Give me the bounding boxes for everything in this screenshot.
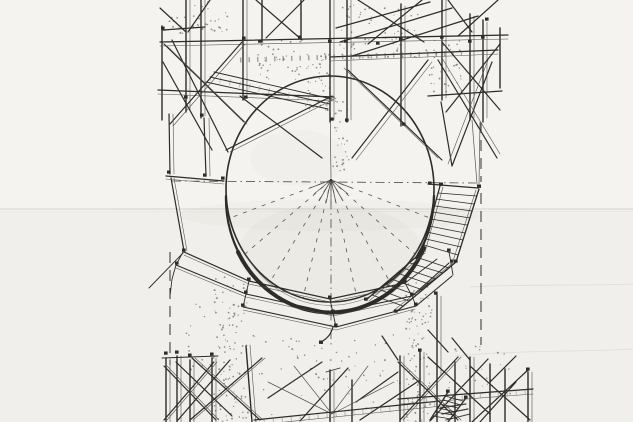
stipple-dot: [300, 66, 301, 67]
stipple-dot: [188, 346, 190, 348]
stipple-dot: [421, 338, 423, 340]
stipple-dot: [391, 39, 392, 40]
stipple-dot: [479, 349, 480, 350]
stipple-face: [253, 334, 395, 420]
stipple-dot: [509, 393, 511, 395]
stipple-dot: [221, 31, 222, 32]
stipple-dot: [368, 39, 369, 40]
stipple-dot: [188, 335, 189, 336]
stipple-dot: [430, 316, 432, 318]
stipple-dot: [475, 380, 477, 382]
stipple-dot: [245, 305, 247, 307]
stipple-dot: [348, 356, 350, 358]
stipple-dot: [348, 8, 350, 10]
stipple-dot: [374, 361, 375, 362]
stipple-dot: [341, 164, 343, 166]
stipple-dot: [434, 83, 435, 84]
stipple-dot: [408, 384, 409, 385]
stipple-dot: [229, 317, 231, 319]
stipple-dot: [243, 284, 245, 286]
stipple-dot: [337, 145, 338, 146]
stipple-dot: [407, 416, 408, 417]
stipple-dot: [188, 350, 190, 352]
stipple-dot: [273, 49, 275, 51]
stipple-dot: [197, 24, 198, 25]
stipple-dot: [455, 64, 457, 66]
stipple-dot: [231, 418, 233, 420]
stipple-dot: [342, 101, 344, 103]
stipple-dot: [366, 380, 367, 381]
stipple-dot: [320, 55, 322, 57]
stipple-dot: [415, 282, 416, 283]
stipple-dot: [228, 312, 230, 314]
stipple-dot: [235, 332, 236, 333]
stipple-dot: [295, 79, 296, 80]
stipple-dot: [418, 333, 419, 334]
stipple-dot: [245, 417, 247, 419]
stipple-dot: [231, 364, 232, 365]
stipple-dot: [270, 64, 271, 65]
stipple-dot: [375, 344, 376, 345]
stipple-dot: [216, 336, 218, 338]
stipple-dot: [235, 402, 236, 403]
stipple-dot: [345, 58, 346, 59]
stipple-dot: [264, 58, 265, 59]
stipple-dot: [413, 347, 414, 348]
stipple-dot: [319, 72, 320, 73]
stipple-dot: [417, 343, 419, 345]
stipple-dot: [341, 30, 342, 31]
stipple-dot: [431, 74, 433, 76]
stipple-dot: [229, 377, 230, 378]
stipple-dot: [319, 78, 320, 79]
stipple-dot: [450, 49, 451, 50]
stipple-dot: [227, 341, 228, 342]
stipple-dot: [298, 74, 300, 76]
stipple-dot: [215, 294, 216, 295]
stipple-dot: [411, 311, 413, 313]
stipple-dot: [348, 387, 349, 388]
stipple-dot: [322, 83, 323, 84]
stipple-dot: [238, 305, 240, 307]
stipple-dot: [449, 382, 450, 383]
stipple-dot: [212, 29, 213, 30]
stipple-dot: [228, 318, 229, 319]
stipple-dot: [254, 336, 255, 337]
stipple-dot: [321, 348, 323, 350]
stipple-dot: [229, 325, 231, 327]
stipple-dot: [232, 324, 234, 326]
stipple-dot: [224, 276, 226, 278]
stipple-dot: [271, 414, 272, 415]
stipple-dot: [336, 165, 338, 167]
stipple-dot: [411, 15, 413, 17]
stipple-dot: [240, 397, 242, 399]
stipple-dot: [412, 317, 413, 318]
stipple-dot: [215, 312, 217, 314]
stipple-dot: [223, 371, 224, 372]
stipple-dot: [310, 82, 311, 83]
stipple-dot: [336, 101, 338, 103]
vanishing-point: [330, 179, 332, 181]
stipple-dot: [236, 359, 237, 360]
stipple-dot: [226, 15, 228, 17]
stipple-dot: [408, 318, 410, 320]
stipple-dot: [210, 20, 211, 21]
stipple-dot: [220, 408, 222, 410]
stipple-dot: [222, 291, 224, 293]
stipple-dot: [262, 64, 264, 66]
stipple-dot: [233, 349, 234, 350]
stipple-dot: [315, 81, 316, 82]
stipple-dot: [428, 321, 429, 322]
stipple-dot: [433, 90, 435, 92]
stipple-dot: [370, 56, 372, 58]
stipple-dot: [353, 5, 354, 6]
stipple-dot: [341, 360, 342, 361]
stipple-dot: [420, 300, 421, 301]
stipple-dot: [429, 382, 430, 383]
stipple-dot: [324, 53, 326, 55]
stipple-dot: [368, 22, 370, 24]
stipple-dot: [385, 38, 386, 39]
stipple-dot: [272, 53, 274, 55]
stipple-dot: [207, 24, 209, 26]
stipple-dot: [384, 7, 386, 9]
stipple-dot: [239, 373, 241, 375]
stipple-dot: [360, 12, 361, 13]
stipple-dot: [433, 50, 434, 51]
stipple-dot: [214, 20, 216, 22]
stipple-dot: [204, 316, 205, 317]
stipple-dot: [321, 79, 323, 81]
stipple-patch: [425, 40, 461, 93]
stipple-dot: [290, 338, 292, 340]
stipple-dot: [393, 334, 394, 335]
stipple-dot: [304, 354, 306, 356]
stipple-dot: [394, 33, 395, 34]
stipple-dot: [176, 17, 178, 19]
stipple-dot: [487, 384, 488, 385]
stipple-dot: [416, 325, 417, 326]
stipple-dot: [337, 127, 338, 128]
stipple-dot: [445, 41, 446, 42]
stipple-dot: [229, 346, 230, 347]
stipple-dot: [225, 378, 227, 380]
stipple-dot: [223, 379, 225, 381]
stipple-dot: [428, 373, 429, 374]
stipple-dot: [439, 78, 441, 80]
stipple-dot: [215, 278, 217, 280]
stipple-dot: [327, 378, 328, 379]
stipple-dot: [342, 7, 344, 9]
stipple-dot: [444, 83, 446, 85]
stipple-dot: [482, 385, 483, 386]
stipple-dot: [348, 159, 350, 161]
stipple-dot: [239, 416, 240, 417]
stipple-dot: [286, 55, 287, 56]
stipple-dot: [297, 355, 298, 356]
stipple-pier-left: [213, 276, 249, 422]
stipple-dot: [410, 360, 412, 362]
stipple-dot: [242, 346, 243, 347]
stipple-dot: [344, 144, 345, 145]
stipple-dot: [319, 63, 321, 65]
stipple-dot: [354, 48, 355, 49]
stipple-dot: [268, 46, 270, 48]
stipple-dot: [182, 32, 184, 34]
stipple-dot: [335, 101, 336, 102]
stipple-dot: [336, 130, 337, 131]
cross-braces: [164, 330, 530, 422]
stipple-dot: [379, 375, 381, 377]
stipple-dot: [223, 325, 224, 326]
stipple-dot: [425, 313, 426, 314]
stipple-dot: [358, 16, 359, 17]
stipple-dot: [312, 64, 313, 65]
stipple-dot: [339, 44, 340, 45]
stipple-dot: [242, 417, 244, 419]
stipple-dot: [373, 401, 374, 402]
stipple-dot: [241, 320, 242, 321]
stipple-dot: [243, 313, 244, 314]
stipple-dot: [225, 339, 226, 340]
stipple-dot: [420, 298, 421, 299]
stipple-dot: [422, 315, 424, 317]
stipple-dot: [396, 51, 398, 53]
stipple-dot: [267, 70, 269, 72]
stipple-dot: [246, 302, 247, 303]
stipple-dot: [414, 412, 416, 414]
stipple-dot: [343, 48, 344, 49]
stipple-dot: [415, 345, 417, 347]
stipple-dot: [214, 405, 216, 407]
stipple-dot: [459, 40, 460, 41]
stipple-dot: [213, 393, 215, 395]
stipple-dot: [330, 359, 332, 361]
stipple-dot: [263, 389, 265, 391]
lower-scaffold: timber scaffolding and plank courses bel…: [162, 295, 533, 422]
stipple-dot: [297, 357, 299, 359]
stipple-dot: [466, 368, 467, 369]
stipple-dot: [325, 86, 326, 87]
stipple-dot: [207, 8, 208, 9]
stipple-dot: [316, 360, 317, 361]
stipple-dot: [226, 395, 228, 397]
stipple-dot: [169, 20, 171, 22]
stipple-dot: [233, 391, 234, 392]
stipple-dot: [448, 387, 449, 388]
stipple-dot: [323, 59, 324, 60]
stipple-dot: [214, 289, 216, 291]
stipple-dot: [393, 15, 394, 16]
stipple-dot: [475, 346, 477, 348]
stipple-dot: [382, 370, 383, 371]
stipple-dot: [226, 415, 227, 416]
stipple-dot: [232, 316, 234, 318]
stipple-dot: [314, 345, 315, 346]
stipple-dot: [339, 121, 341, 123]
stipple-dot: [414, 312, 415, 313]
plank-ticks-left: [255, 404, 441, 422]
stipple-dot: [219, 324, 221, 326]
stipple-dot: [324, 389, 326, 391]
stipple-dot: [234, 398, 235, 399]
stipple-dot: [277, 59, 278, 60]
stipple-dot: [409, 328, 410, 329]
stipple-dot: [342, 159, 344, 161]
stipple-dot: [321, 60, 322, 61]
stipple-dot: [219, 390, 220, 391]
stipple-dot: [422, 298, 423, 299]
stipple-dot: [276, 57, 277, 58]
stipple-dot: [225, 12, 226, 13]
stipple-dot: [421, 419, 422, 420]
stipple-dot: [406, 378, 408, 380]
stipple-dot: [356, 352, 357, 353]
stipple-dot: [194, 5, 195, 6]
stipple-dot: [323, 90, 325, 92]
stipple-dot: [179, 32, 181, 34]
stipple-dot: [229, 348, 231, 350]
stipple-dot: [448, 85, 450, 87]
stipple-dot: [415, 366, 417, 368]
stipple-dot: [226, 29, 228, 31]
stipple-dot: [406, 321, 407, 322]
stipple-dot: [296, 67, 298, 69]
stipple-dot: [386, 19, 387, 20]
stipple-dot: [214, 30, 216, 32]
stipple-dot: [342, 137, 344, 139]
stipple-dot: [287, 66, 289, 68]
stipple-dot: [212, 357, 214, 359]
stipple-dot: [238, 314, 239, 315]
stipple-dot: [429, 74, 431, 76]
stipple-dot: [316, 67, 318, 69]
stipple-dot: [343, 169, 345, 171]
stipple-dot: [307, 54, 308, 55]
stipple-dot: [198, 18, 200, 20]
stipple-dot: [413, 290, 415, 292]
stipple-dot: [241, 352, 243, 354]
stipple-dot: [221, 329, 223, 331]
stipple-dot: [190, 325, 191, 326]
stipple-dot: [268, 78, 269, 79]
stipple-dot: [508, 368, 509, 369]
stipple-dot: [425, 49, 427, 51]
stipple-dot: [296, 341, 297, 342]
stipple-dot: [423, 411, 424, 412]
stipple-dot: [298, 341, 299, 342]
stipple-dot: [440, 71, 441, 72]
stipple-dot: [397, 31, 399, 33]
stipple-dot: [384, 32, 386, 34]
stipple-dot: [242, 412, 243, 413]
stipple-dot: [228, 379, 229, 380]
stipple-dot: [354, 340, 355, 341]
stipple-dot: [465, 365, 466, 366]
stipple-dot: [253, 335, 255, 337]
stipple-dot: [360, 14, 362, 16]
stipple-dot: [407, 29, 409, 31]
stipple-dot: [293, 51, 295, 53]
stipple-dot: [222, 302, 223, 303]
stipple-dot: [223, 362, 225, 364]
stipple-dot: [362, 57, 363, 58]
stipple-dot: [280, 368, 281, 369]
stipple-dot: [186, 332, 188, 334]
paper-texture-curve: [470, 284, 633, 287]
stipple-dot: [282, 340, 284, 342]
stipple-dot: [413, 342, 414, 343]
stipple-dot: [345, 376, 347, 378]
stipple-dot: [323, 378, 325, 380]
stipple-dot: [340, 110, 342, 112]
stipple-dot: [405, 328, 407, 330]
stipple-dot: [229, 365, 231, 367]
stipple-dot: [411, 346, 412, 347]
stipple-dot: [460, 78, 461, 79]
stipple-dot: [219, 347, 221, 349]
stipple-dot: [260, 74, 261, 75]
stipple-dot: [332, 379, 333, 380]
stipple-dot: [227, 420, 228, 421]
stipple-dot: [349, 17, 351, 19]
stipple-dot: [428, 298, 429, 299]
stipple-dot: [259, 373, 260, 374]
stipple-dot: [413, 339, 415, 341]
stipple-dot: [195, 304, 196, 305]
stipple-dot: [380, 373, 381, 374]
stipple-dot: [363, 375, 365, 377]
stipple-dot: [279, 59, 281, 61]
stipple-dot: [210, 28, 211, 29]
stipple-dot: [353, 43, 354, 44]
stipple-dot: [221, 374, 222, 375]
stipple-dot: [236, 326, 238, 328]
stipple-dot: [454, 348, 456, 350]
stipple-dot: [290, 41, 292, 43]
stipple-dot: [448, 70, 449, 71]
stipple-dot: [456, 43, 458, 45]
stipple-dot: [430, 312, 431, 313]
stipple-dot: [234, 313, 236, 315]
stipple-dot: [387, 56, 389, 58]
stipple-dot: [325, 104, 327, 106]
stipple-dot: [364, 38, 366, 40]
scanned-sketch-page: Hand-drawn ink perspective sketch: circu…: [0, 0, 633, 422]
stipple-dot: [503, 353, 504, 354]
stipple-dot: [411, 318, 412, 319]
stipple-dot: [448, 44, 450, 46]
stipple-dot: [237, 372, 238, 373]
stipple-dot: [172, 26, 174, 28]
stipple-dot: [414, 355, 416, 357]
stipple-dot: [233, 406, 234, 407]
stipple-dot: [486, 377, 488, 379]
stipple-dot: [433, 66, 434, 67]
stipple-dot: [427, 413, 428, 414]
stipple-dot: [222, 327, 224, 329]
stipple-dot: [421, 319, 422, 320]
stipple-dot: [332, 165, 334, 167]
stipple-dot: [426, 366, 428, 368]
stipple-dot: [318, 377, 320, 379]
stipple-dot: [338, 138, 339, 139]
stipple-dot: [261, 373, 263, 375]
stipple-dot: [415, 319, 417, 321]
stipple-dot: [232, 376, 234, 378]
